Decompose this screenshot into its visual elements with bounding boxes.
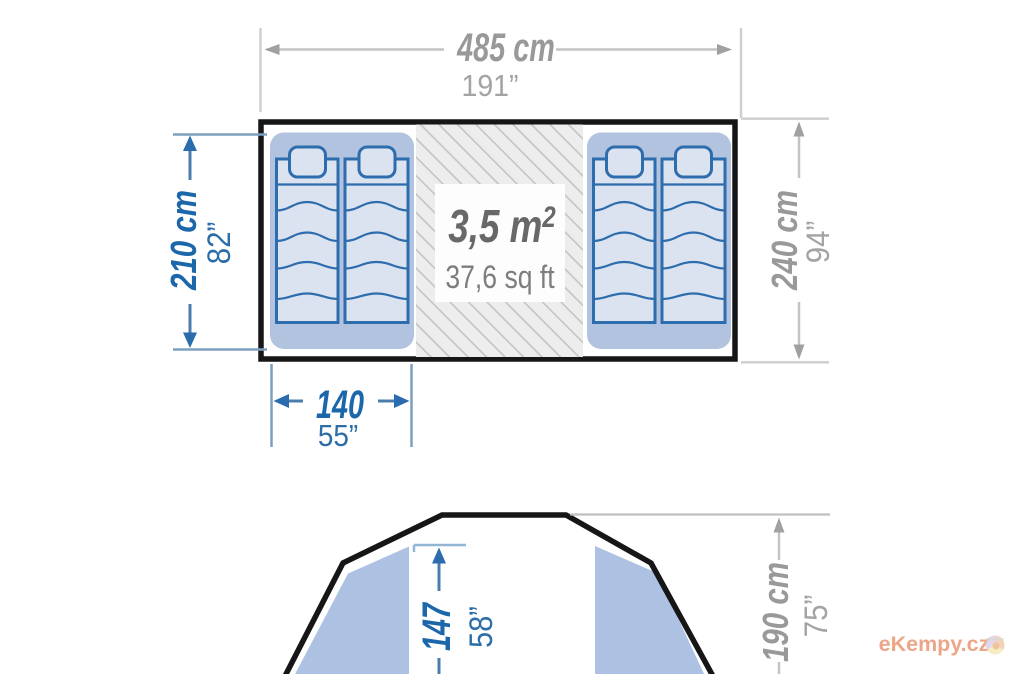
svg-text:37,6 sq ft: 37,6 sq ft bbox=[445, 260, 554, 296]
svg-text:3,5 m2: 3,5 m2 bbox=[448, 199, 555, 252]
svg-text:82”: 82” bbox=[201, 222, 237, 265]
svg-text:190 cm: 190 cm bbox=[755, 562, 795, 662]
svg-text:94”: 94” bbox=[800, 221, 836, 264]
svg-text:eKempy.cz: eKempy.cz bbox=[879, 632, 990, 656]
svg-text:147: 147 bbox=[414, 602, 459, 651]
svg-text:75”: 75” bbox=[798, 595, 834, 638]
svg-text:240 cm: 240 cm bbox=[764, 190, 804, 291]
svg-text:58”: 58” bbox=[464, 606, 500, 648]
svg-text:485 cm: 485 cm bbox=[456, 25, 554, 70]
svg-text:55”: 55” bbox=[318, 419, 358, 454]
svg-text:210 cm: 210 cm bbox=[163, 190, 203, 291]
svg-text:191”: 191” bbox=[461, 69, 518, 103]
